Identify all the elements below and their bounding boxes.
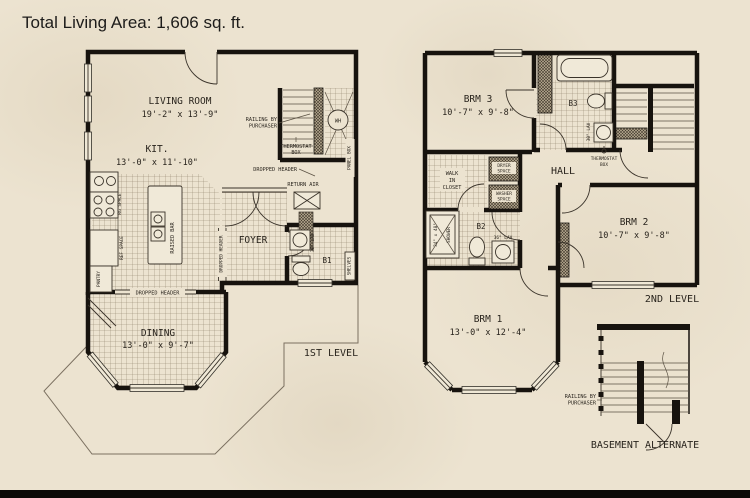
sheet-bottom-border	[0, 490, 750, 498]
bath1-toilet-tank	[292, 256, 310, 262]
kitchen-dims: 13'-0" x 11'-10"	[116, 158, 198, 168]
shower-note: SHOWER	[446, 227, 452, 243]
svg-text:IN: IN	[449, 178, 455, 184]
washer-label: WASHER SPACE	[496, 191, 512, 203]
bedroom1-dims: 13'-0" x 12'-4"	[450, 328, 527, 338]
bedroom3-label: BRM 3	[464, 94, 493, 105]
bedroom1-label: BRM 1	[474, 314, 503, 325]
svg-text:CLOSET: CLOSET	[443, 185, 462, 191]
dining-floor-tile	[90, 294, 224, 386]
bath1-toilet	[293, 263, 309, 276]
bedroom2-closet	[560, 223, 569, 277]
svg-text:DROPPED HEADER: DROPPED HEADER	[253, 167, 298, 173]
svg-text:THERMOSTAT: THERMOSTAT	[591, 156, 618, 162]
basement-stairs	[601, 352, 689, 450]
dryer-label: DRYER SPACE	[497, 163, 511, 175]
svg-text:BOX: BOX	[600, 162, 608, 168]
panel-box-note: PANEL BOX	[347, 146, 353, 170]
svg-text:WALK: WALK	[446, 171, 459, 177]
dropped-header-note: DROPPED HEADER	[253, 167, 315, 176]
dining-dims: 13'-0" x 9'-7"	[122, 341, 194, 351]
svg-text:RAILING BY: RAILING BY	[246, 117, 278, 123]
pantry-note: PANTRY	[96, 271, 102, 287]
raised-bar-note: RAISED BAR	[170, 222, 176, 254]
floor-plan-drawing: Total Living Area: 1,606 sq. ft.	[0, 0, 750, 498]
second-level-plan: BRM 3 10'-7" x 9'-8" B3 30" LAV HALL THE…	[425, 50, 700, 394]
bath3-label: B3	[568, 99, 577, 108]
kitchen-label: KIT.	[146, 144, 169, 155]
bath3-toilet-tank	[605, 93, 612, 109]
stair-railing-2f	[616, 128, 647, 139]
bath3-lav-note: 30" LAV	[586, 122, 592, 141]
shelves-note: SHELVES	[347, 256, 353, 275]
hall-label: HALL	[551, 166, 575, 177]
bath2-toilet	[470, 237, 485, 257]
basement-caption: BASEMENT ALTERNATE	[591, 440, 699, 451]
bath2-label: B2	[476, 222, 485, 231]
svg-text:DRYER: DRYER	[497, 163, 511, 169]
thermostat-note-2f: THERMOSTAT BOX	[591, 156, 618, 168]
stair-railing	[314, 88, 323, 154]
bedroom3-closet	[538, 55, 552, 113]
total-living-area-title: Total Living Area: 1,606 sq. ft.	[22, 13, 245, 32]
svg-text:BOX: BOX	[291, 150, 301, 156]
refrigerator-space	[90, 230, 118, 266]
floor-plan-sheet: Total Living Area: 1,606 sq. ft.	[0, 0, 750, 498]
bath2-shower	[426, 211, 459, 258]
bath3-toilet	[588, 94, 605, 108]
bedroom2-dims: 10'-7" x 9'-8"	[598, 231, 670, 241]
bath1-lav-note: 30" LAV	[310, 233, 316, 252]
svg-text:PURCHASER: PURCHASER	[249, 124, 278, 130]
foyer-dropped-header-note: DROPPED HEADER	[219, 235, 225, 272]
ref-space-note: REF SPACE	[119, 236, 125, 260]
range-space-note: RG SPACE	[117, 193, 123, 215]
dining-label: DINING	[141, 328, 176, 339]
living-foyer-header-lines	[222, 188, 287, 192]
return-air-note: RETURN AIR	[287, 182, 319, 188]
living-room-dims: 19'-2" x 13'-9"	[142, 110, 219, 120]
svg-text:SPACE: SPACE	[497, 197, 511, 203]
first-level-caption: 1ST LEVEL	[304, 348, 358, 359]
first-level-plan: WH	[44, 52, 358, 454]
svg-text:WASHER: WASHER	[496, 191, 512, 197]
svg-text:PURCHASER: PURCHASER	[568, 401, 597, 407]
shower-size-note: 34" x 48"	[433, 223, 439, 247]
bedroom3-dims: 10'-7" x 9'-8"	[442, 108, 514, 118]
bedroom2-label: BRM 2	[620, 217, 649, 228]
basement-railing-note: RAILING BY PURCHASER	[565, 394, 602, 407]
island-raised-bar	[148, 186, 182, 264]
foyer-label: FOYER	[239, 235, 268, 246]
basement-alternate-plan: RAILING BY PURCHASER BASEMENT ALTERNATE	[565, 327, 699, 451]
svg-text:SPACE: SPACE	[497, 169, 511, 175]
water-heater-label: WH	[335, 119, 341, 125]
bath2-toilet-tank	[469, 258, 485, 265]
bath1-label: B1	[322, 256, 331, 265]
bath2-lav-note: 36" LAV	[494, 235, 513, 241]
living-room-label: LIVING ROOM	[149, 96, 212, 107]
svg-text:RAILING BY: RAILING BY	[565, 394, 597, 400]
second-level-caption: 2ND LEVEL	[645, 294, 699, 305]
kitchen-dropped-header-note: DROPPED HEADER	[136, 291, 181, 297]
water-heater: WH	[328, 110, 348, 130]
walkin-closet-label: WALK IN CLOSET	[440, 168, 465, 191]
